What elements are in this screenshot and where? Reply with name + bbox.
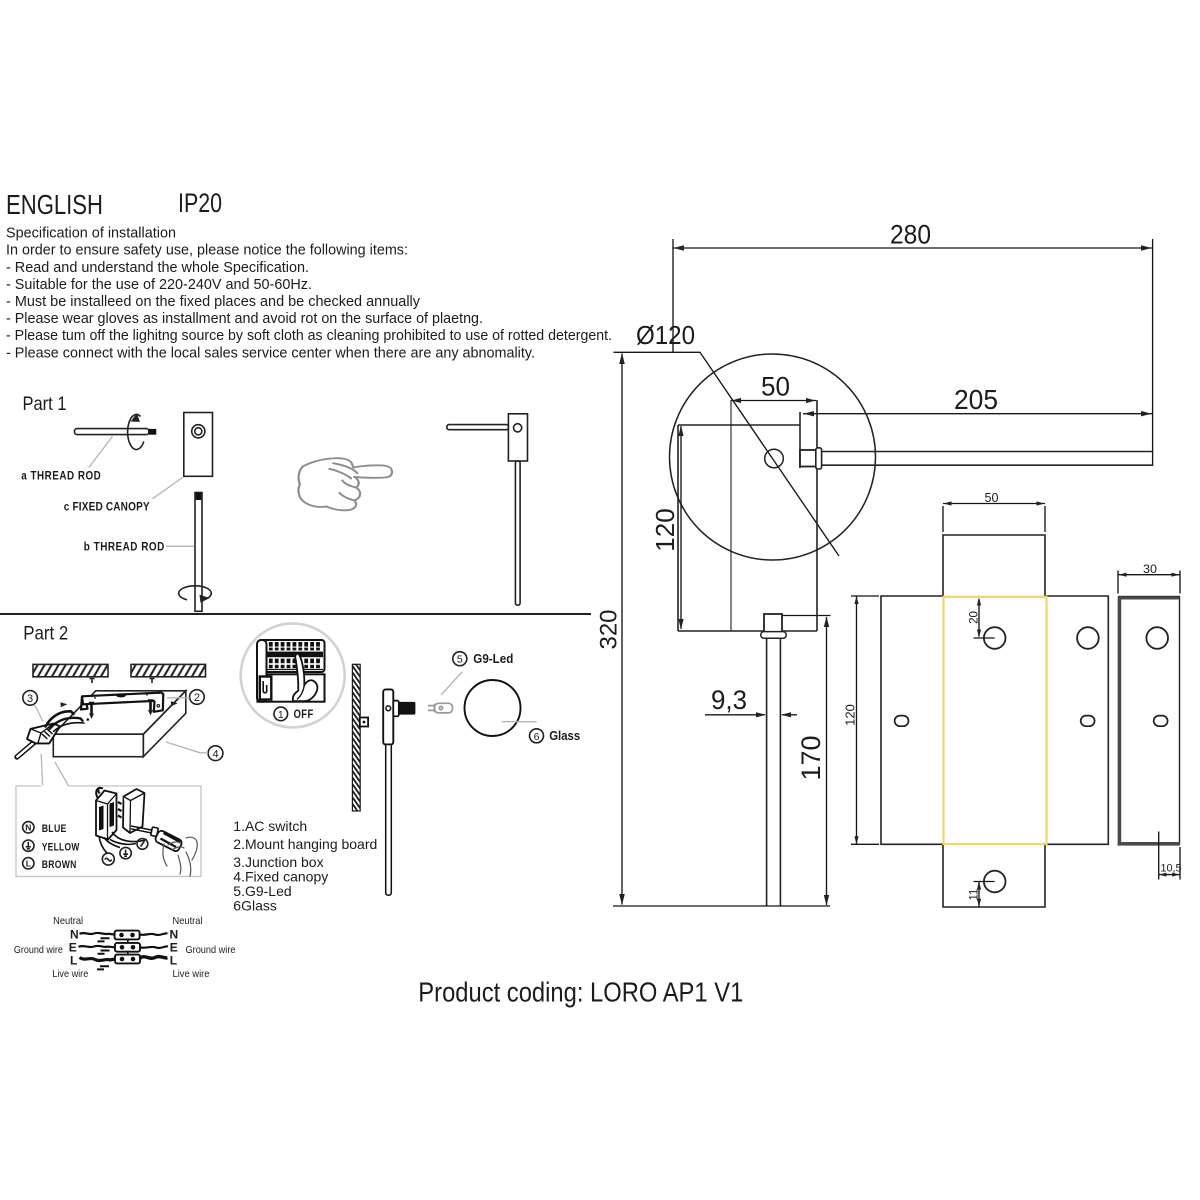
svg-text:4: 4	[212, 748, 218, 760]
svg-text:10,5: 10,5	[1161, 863, 1182, 875]
svg-text:L: L	[70, 954, 77, 968]
svg-text:E: E	[170, 941, 178, 955]
svg-text:- Please connect with the loca: - Please connect with the local sales se…	[6, 345, 535, 361]
svg-text:320: 320	[596, 609, 623, 649]
svg-text:b THREAD ROD: b THREAD ROD	[84, 542, 165, 554]
svg-text:3: 3	[27, 693, 33, 705]
svg-text:Live wire: Live wire	[52, 968, 88, 980]
svg-text:205: 205	[954, 384, 998, 415]
svg-text:G9-Led: G9-Led	[473, 652, 513, 666]
svg-text:N: N	[70, 928, 79, 942]
svg-text:11: 11	[969, 889, 981, 901]
svg-text:Ground wire: Ground wire	[14, 944, 63, 956]
svg-text:BROWN: BROWN	[42, 859, 77, 871]
svg-text:6Glass: 6Glass	[233, 898, 277, 914]
svg-text:Ø120: Ø120	[636, 320, 695, 350]
svg-text:L: L	[170, 954, 177, 968]
svg-text:9,3: 9,3	[711, 685, 747, 715]
svg-text:YELLOW: YELLOW	[42, 842, 80, 854]
svg-text:120: 120	[650, 508, 680, 551]
svg-text:IP20: IP20	[178, 188, 222, 218]
svg-text:2.Mount hanging board: 2.Mount hanging board	[233, 836, 377, 852]
svg-text:N: N	[25, 823, 31, 833]
svg-text:Product coding: LORO AP1 V1: Product coding: LORO AP1 V1	[418, 977, 743, 1008]
svg-text:Neutral: Neutral	[173, 915, 203, 927]
svg-text:Glass: Glass	[549, 729, 580, 743]
svg-text:20: 20	[969, 611, 981, 624]
svg-text:120: 120	[843, 704, 858, 726]
svg-text:- Please wear gloves as instal: - Please wear gloves as installment and …	[6, 311, 483, 327]
svg-text:- Read and understand the whol: - Read and understand the whole Specific…	[6, 260, 309, 276]
svg-text:280: 280	[890, 220, 931, 250]
svg-text:50: 50	[761, 372, 790, 402]
svg-text:L: L	[26, 859, 31, 869]
svg-text:N: N	[170, 928, 179, 942]
svg-text:50: 50	[985, 490, 999, 505]
svg-text:BLUE: BLUE	[42, 823, 67, 835]
svg-text:Part 2: Part 2	[23, 623, 68, 645]
svg-text:- Please tum off the lighitng: - Please tum off the lighitng source by …	[6, 328, 612, 344]
svg-text:In order to ensure safety use,: In order to ensure safety use, please no…	[6, 243, 408, 259]
svg-text:Part 1: Part 1	[23, 393, 67, 415]
svg-text:30: 30	[1143, 562, 1157, 576]
svg-text:170: 170	[796, 735, 826, 780]
svg-text:c FIXED CANOPY: c FIXED CANOPY	[64, 502, 150, 514]
svg-text:Ground wire: Ground wire	[186, 944, 236, 956]
svg-text:OFF: OFF	[294, 709, 314, 721]
svg-text:1.AC switch: 1.AC switch	[233, 818, 307, 834]
svg-text:Live wire: Live wire	[173, 968, 210, 980]
svg-text:Specification of installation: Specification of installation	[6, 226, 176, 242]
svg-text:E: E	[69, 941, 77, 955]
svg-text:6: 6	[534, 731, 540, 743]
svg-text:Neutral: Neutral	[53, 915, 83, 927]
svg-text:- Suitable for the use of 220-: - Suitable for the use of 220-240V and 5…	[6, 277, 312, 293]
svg-text:5: 5	[457, 654, 463, 666]
svg-text:ENGLISH: ENGLISH	[6, 189, 103, 220]
svg-text:2: 2	[194, 692, 200, 704]
svg-text:a THREAD ROD: a THREAD ROD	[21, 471, 101, 483]
svg-text:- Must be installeed on the fi: - Must be installeed on the fixed places…	[6, 294, 421, 310]
svg-text:1: 1	[278, 709, 284, 721]
